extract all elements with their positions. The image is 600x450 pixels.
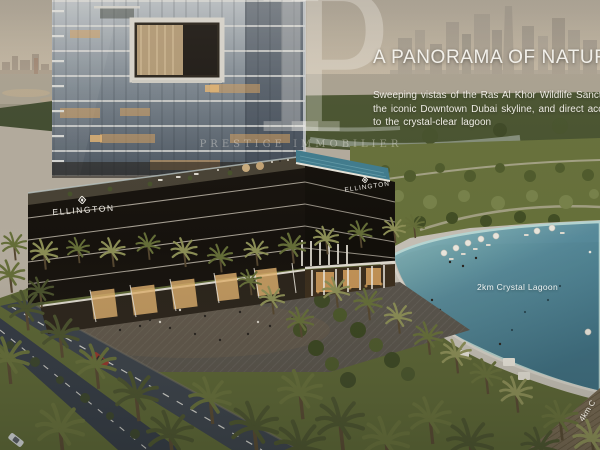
watermark-brand-name: PRESTIGE IMMOBILIER: [196, 139, 406, 150]
hero-body-line-3: to the crystal-clear lagoon: [373, 116, 600, 130]
hero-marketing-render: .p1{stroke:#8a8d55}.p2{stroke:#646d38}.p…: [0, 0, 600, 450]
hero-body-line-1: Sweeping vistas of the Ras Al Khor Wildl…: [373, 89, 600, 103]
lagoon-label: 2km Crystal Lagoon: [477, 282, 558, 292]
ellington-logo-mark-icon: [361, 177, 369, 184]
headline: A PANORAMA OF NATURE: [373, 47, 600, 69]
ellington-logo-mark-icon: [77, 196, 87, 205]
hero-body-line-2: the iconic Downtown Dubai skyline, and d…: [373, 103, 600, 117]
hero-body-copy: Sweeping vistas of the Ras Al Khor Wildl…: [373, 89, 600, 130]
